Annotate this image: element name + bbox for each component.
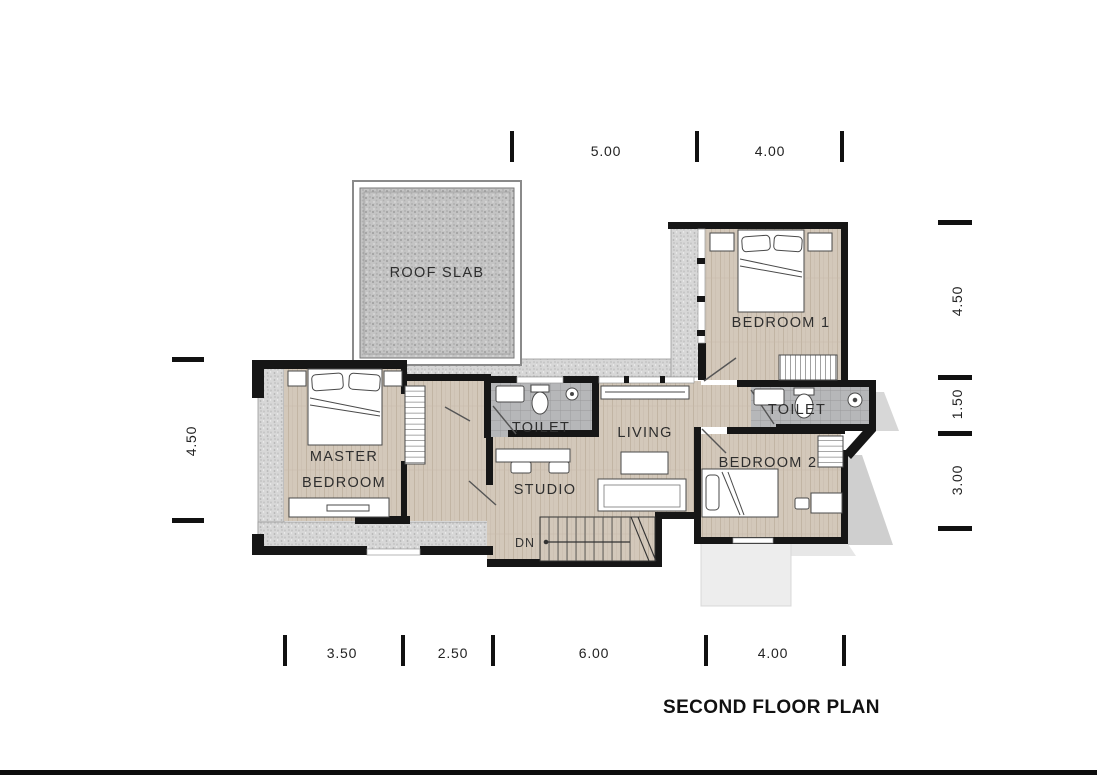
room-label-master-line1: MASTER: [310, 449, 378, 465]
room-label-bedroom1: BEDROOM 1: [732, 315, 831, 331]
room-label-studio: STUDIO: [514, 482, 577, 498]
dressing-wardrobe-icon: [405, 386, 425, 464]
floor-plan-drawing: DN ROOF SLAB BEDROOM 1 TOILET TOILET LIV…: [0, 0, 1097, 775]
room-label-living: LIVING: [617, 425, 672, 441]
bedroom2-wardrobe-icon: [818, 436, 843, 467]
stair-direction-label: DN: [515, 536, 535, 550]
room-label-toilet-left: TOILET: [512, 420, 570, 436]
bedroom1-wardrobe-icon: [779, 355, 837, 380]
living-sofa-icon: [598, 479, 686, 511]
page-title: SECOND FLOOR PLAN: [663, 697, 880, 718]
room-label-master-line2: BEDROOM: [302, 475, 386, 491]
dim-bottom-2: 6.00: [579, 645, 609, 661]
floor-plan-page: DN ROOF SLAB BEDROOM 1 TOILET TOILET LIV…: [0, 0, 1097, 775]
dim-top-0: 5.00: [591, 143, 621, 159]
room-label-toilet-right: TOILET: [768, 402, 826, 418]
dim-left-0: 4.50: [183, 426, 199, 456]
bedroom2-desk-icon: [811, 493, 842, 513]
studio-chair-icon: [511, 462, 531, 473]
living-coffee-table-icon: [621, 452, 668, 474]
room-label-roof-slab: ROOF SLAB: [390, 265, 485, 281]
studio-chair-icon: [549, 462, 569, 473]
dim-bottom-0: 3.50: [327, 645, 357, 661]
dim-bottom-3: 4.00: [758, 645, 788, 661]
floor-hall: [701, 385, 751, 427]
master-console-icon: [289, 498, 389, 517]
dim-right-0: 4.50: [949, 286, 965, 316]
dim-right-2: 3.00: [949, 465, 965, 495]
dim-top-1: 4.00: [755, 143, 785, 159]
bedroom2-bed-icon: [702, 469, 778, 517]
page-bottom-rule: [0, 770, 1097, 775]
bedroom2-chair-icon: [795, 498, 809, 509]
dim-bottom-1: 2.50: [438, 645, 468, 661]
living-shelf-icon: [601, 386, 689, 399]
studio-desk-icon: [496, 449, 570, 462]
lower-roof-canopy: [701, 541, 791, 606]
room-label-bedroom2: BEDROOM 2: [719, 455, 818, 471]
dim-right-1: 1.50: [949, 389, 965, 419]
staircase: [540, 517, 656, 561]
